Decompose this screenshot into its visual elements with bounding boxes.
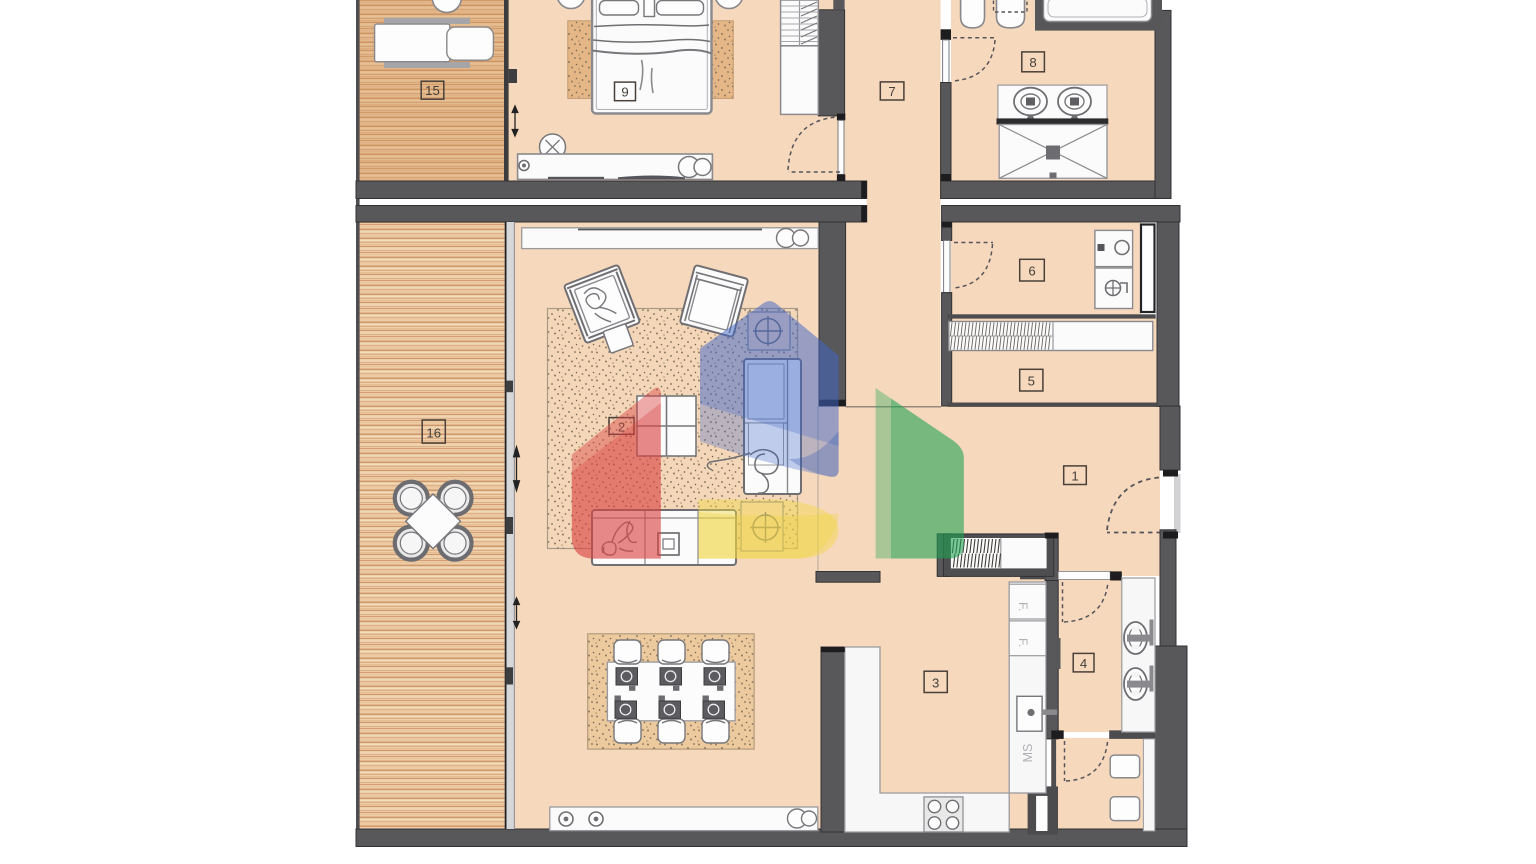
svg-text:8: 8 <box>1029 55 1036 70</box>
svg-text:F.: F. <box>1016 602 1030 611</box>
svg-text:F.: F. <box>1016 638 1030 647</box>
svg-text:1: 1 <box>1071 469 1078 484</box>
svg-text:MS: MS <box>1021 744 1035 763</box>
svg-text:5: 5 <box>1028 374 1035 389</box>
svg-text:4: 4 <box>1080 656 1087 671</box>
svg-text:7: 7 <box>888 84 895 99</box>
svg-text:6: 6 <box>1028 264 1035 279</box>
svg-text:3: 3 <box>932 676 939 691</box>
svg-text:16: 16 <box>426 425 441 440</box>
svg-text:15: 15 <box>425 83 440 98</box>
svg-text:9: 9 <box>621 84 628 99</box>
